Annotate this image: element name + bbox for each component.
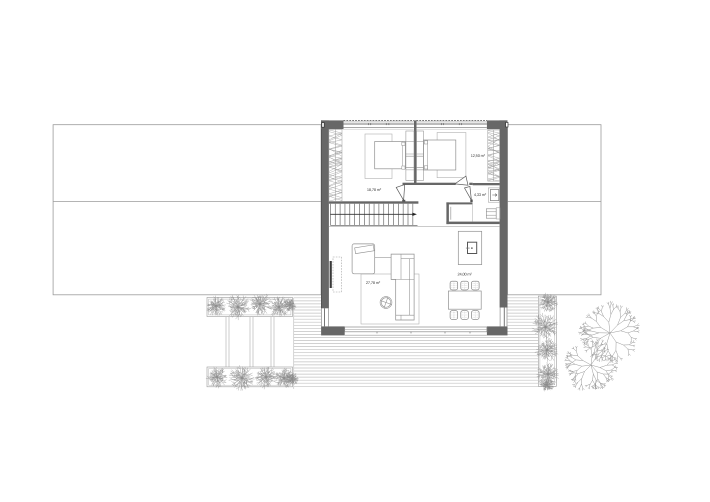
svg-text:18,78 m²: 18,78 m² — [367, 187, 382, 192]
svg-text:4,33 m²: 4,33 m² — [474, 192, 487, 197]
svg-text:12,50 m²: 12,50 m² — [471, 153, 486, 158]
svg-text:27,78 m²: 27,78 m² — [366, 280, 381, 285]
svg-text:24,00 m²: 24,00 m² — [458, 272, 473, 277]
